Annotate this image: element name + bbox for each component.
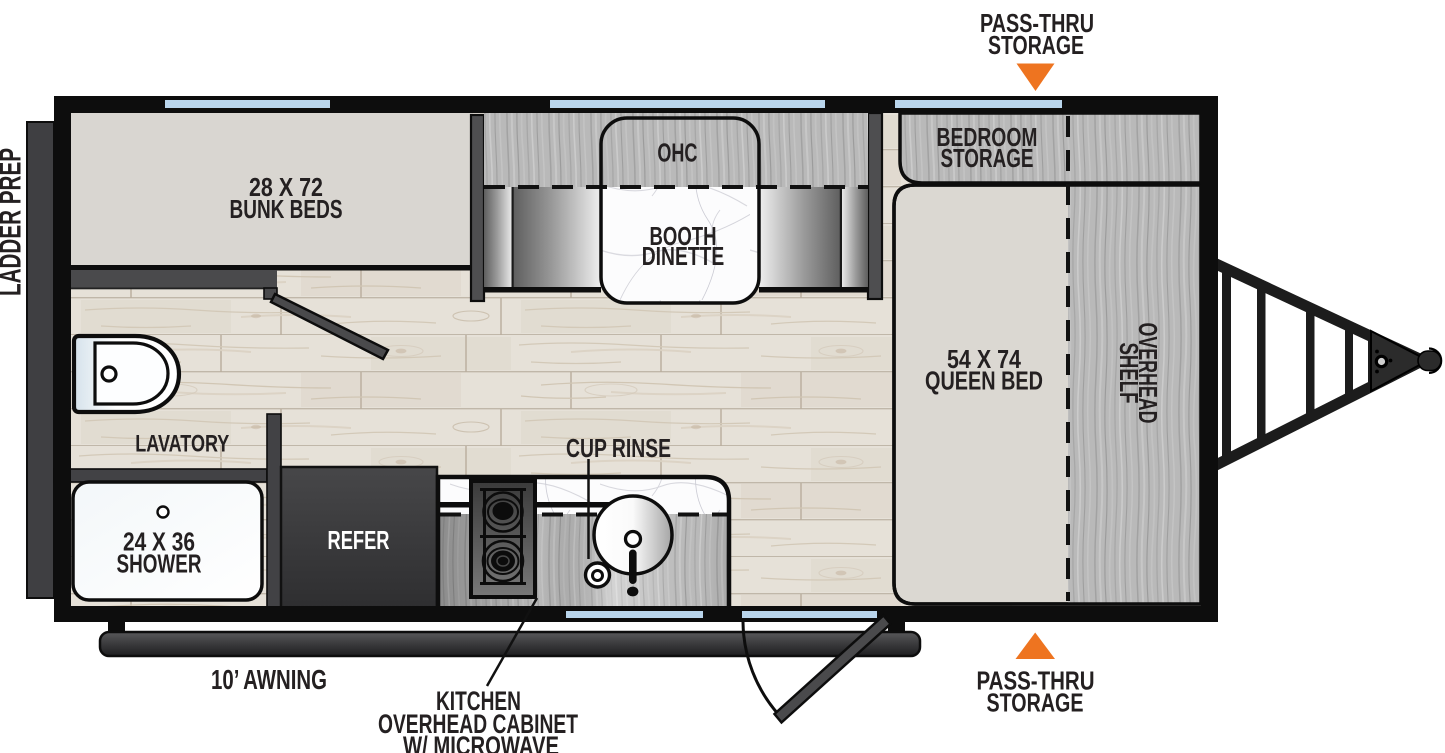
svg-text:SHELF: SHELF [1114,343,1144,404]
svg-text:OHC: OHC [657,137,697,167]
svg-text:10’ AWNING: 10’ AWNING [211,664,327,695]
svg-text:SHOWER: SHOWER [117,551,202,579]
svg-text:LADDER PREP: LADDER PREP [0,148,28,296]
svg-text:STORAGE: STORAGE [988,30,1084,60]
svg-text:BUNK BEDS: BUNK BEDS [230,194,343,224]
svg-text:LAVATORY: LAVATORY [135,431,229,458]
svg-text:QUEEN BED: QUEEN BED [925,366,1043,396]
svg-text:REFER: REFER [328,525,390,555]
svg-text:CUP RINSE: CUP RINSE [566,433,671,463]
svg-text:DINETTE: DINETTE [642,241,725,271]
svg-text:STORAGE: STORAGE [941,145,1034,173]
svg-text:STORAGE: STORAGE [987,688,1084,718]
svg-text:W/ MICROWAVE: W/ MICROWAVE [403,731,559,753]
